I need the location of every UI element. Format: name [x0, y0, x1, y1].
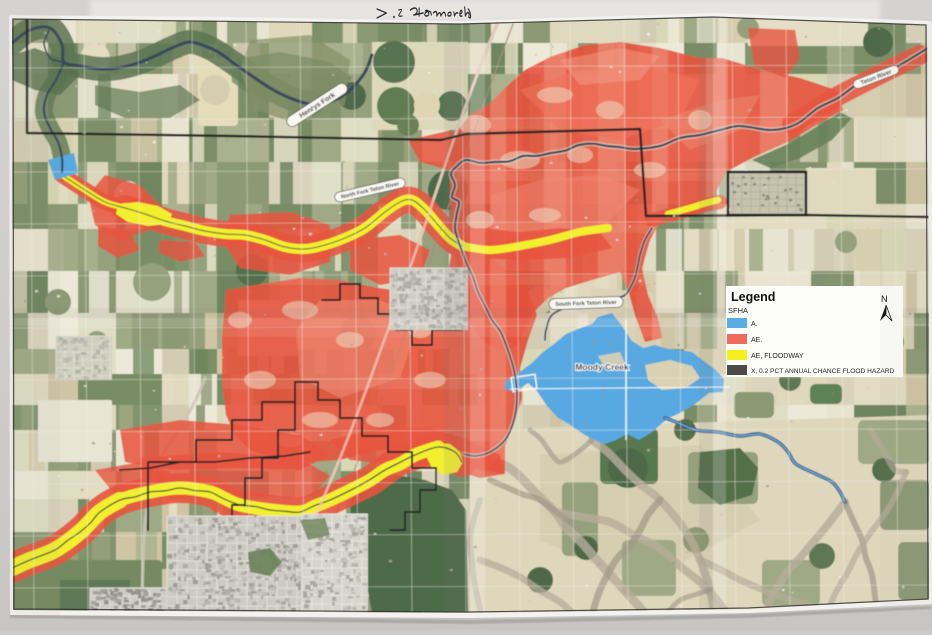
svg-text:X, 0.2 PCT ANNUAL CHANCE FLOOD: X, 0.2 PCT ANNUAL CHANCE FLOOD HAZARD [751, 368, 895, 375]
svg-text:A.: A. [751, 321, 758, 328]
svg-text:AE.: AE. [751, 337, 762, 344]
svg-text:AE, FLOODWAY: AE, FLOODWAY [751, 353, 804, 360]
svg-text:SFHA: SFHA [728, 306, 748, 315]
svg-text:Legend: Legend [731, 290, 775, 304]
